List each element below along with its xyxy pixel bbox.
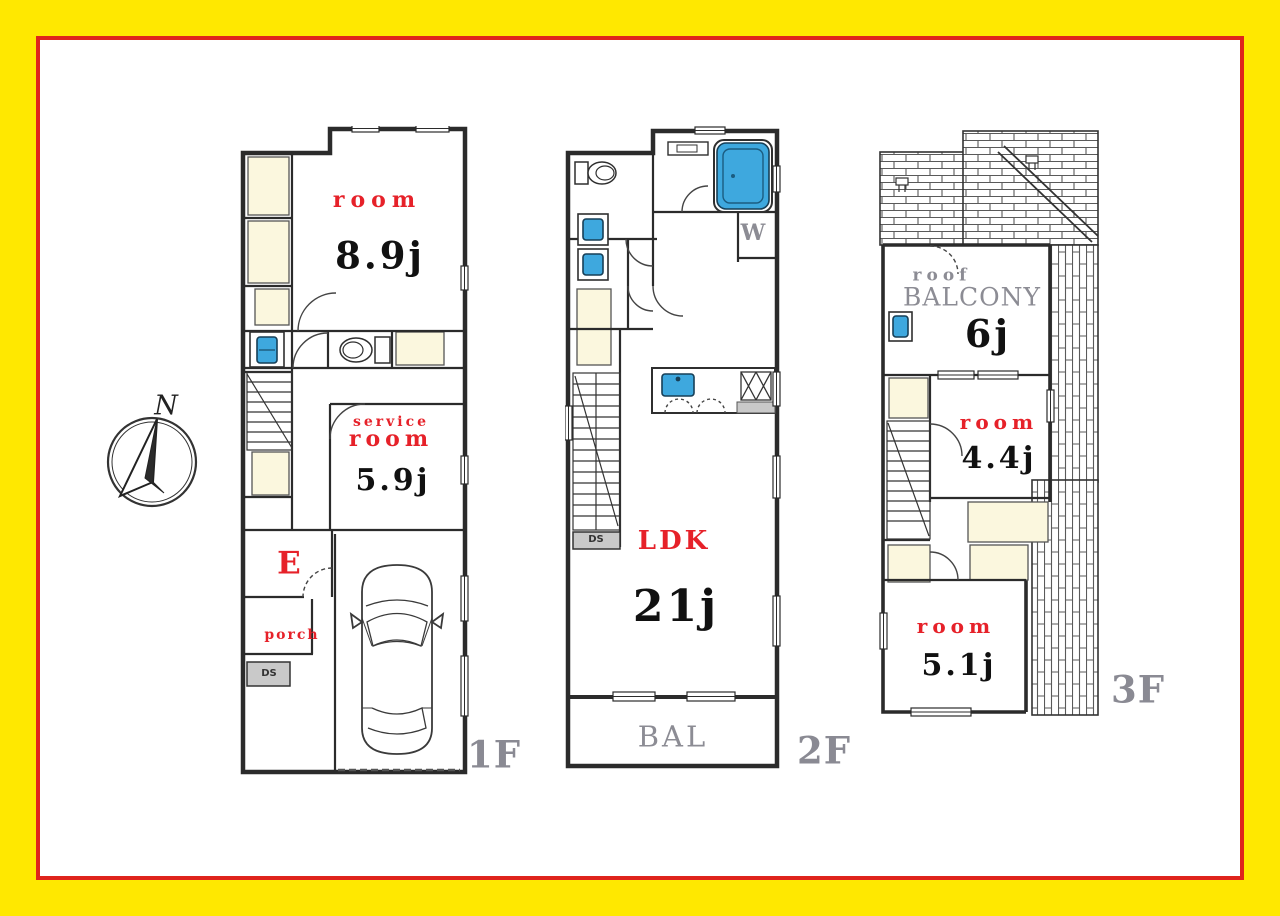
closet-2f (577, 289, 611, 365)
closets-3f (888, 378, 1048, 582)
floorplan-page: { "title": "3-story house floor plan", "… (0, 0, 1280, 916)
floorplan-2f-drawing (565, 126, 810, 776)
stairs-icon-1f (247, 372, 292, 450)
stairs-icon-2f (573, 373, 620, 530)
ldk-size: 21j (633, 585, 719, 629)
door-arcs-2f (626, 186, 708, 316)
porch-label: porch (264, 628, 319, 642)
compass-north-label: N (154, 393, 178, 420)
stairs-icon-3f (887, 421, 930, 539)
roof-balcony-label-line2: BALCONY (903, 285, 1041, 310)
balcony-label-2f: BAL (638, 723, 709, 752)
toilet-icon-1f (340, 337, 390, 363)
washbasin-icon-3f (889, 312, 912, 341)
floor-label-2f: 2F (797, 733, 851, 770)
room2-label-3f: room (917, 616, 995, 636)
floorplan-2f: W DS LDK 21j BAL (565, 126, 810, 776)
toilet-icon-2f (575, 162, 616, 184)
ldk-label: LDK (638, 528, 710, 554)
compass: N (104, 392, 214, 512)
room1-size-3f: 4.4j (961, 444, 1036, 474)
room-size-1f: 8.9j (335, 238, 425, 275)
floorplan-1f: room 8.9j service room 5.9j E porch DS (240, 126, 525, 776)
kitchen-counter (652, 368, 775, 413)
room1-label-3f: room (960, 412, 1038, 432)
entrance-label: E (277, 549, 301, 580)
floorplan-3f: roof BALCONY 6j room 4.4j room 5.1j (876, 126, 1106, 726)
duct-space-label-1f: DS (261, 669, 277, 679)
service-room-label-line2: room (349, 428, 433, 450)
car-icon (351, 565, 443, 754)
floor-label-1f: 1F (467, 737, 521, 774)
service-room-size: 5.9j (355, 466, 430, 496)
room2-size-3f: 5.1j (921, 651, 996, 681)
duct-space-label-2f: DS (588, 535, 604, 545)
washbasin-icons-2f (578, 214, 608, 280)
room-label-1f: room (333, 189, 421, 211)
roof-balcony-size: 6j (965, 315, 1011, 353)
washbasin-icon-1f (250, 332, 284, 367)
washer-label: W (741, 222, 766, 244)
floor-label-3f: 3F (1111, 672, 1165, 709)
